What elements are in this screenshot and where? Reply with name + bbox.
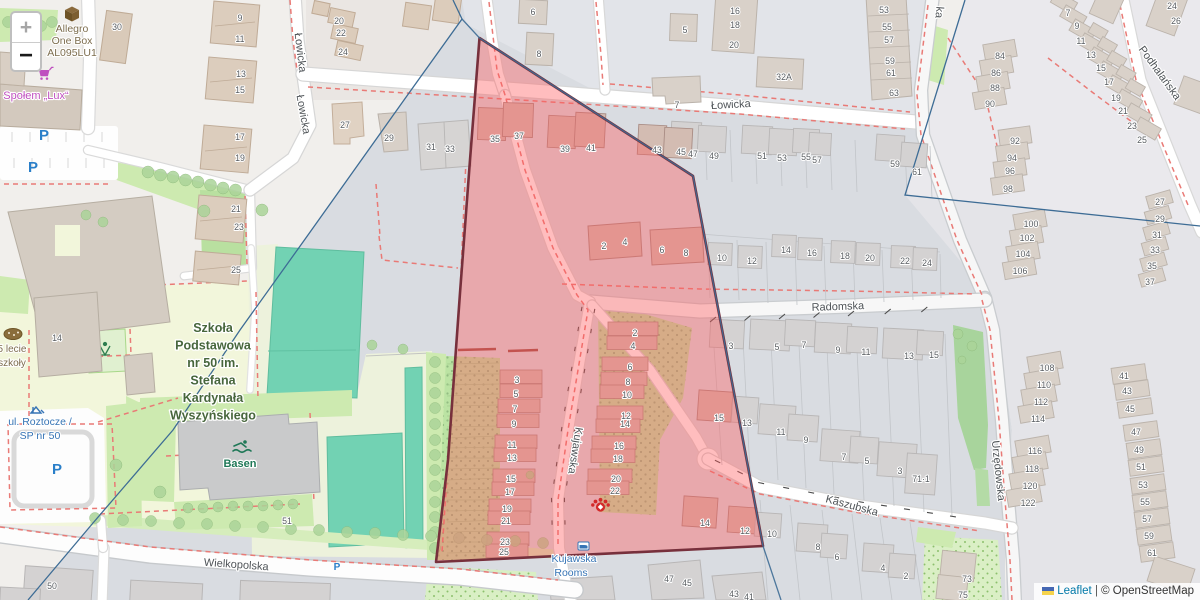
svg-text:104: 104	[1016, 249, 1031, 259]
svg-text:4: 4	[881, 563, 886, 573]
svg-text:50: 50	[47, 581, 57, 591]
svg-text:116: 116	[1028, 446, 1042, 456]
svg-text:12: 12	[740, 526, 750, 536]
svg-text:55: 55	[801, 152, 811, 162]
svg-text:13: 13	[236, 69, 246, 79]
svg-text:26: 26	[1171, 16, 1181, 26]
svg-text:32A: 32A	[776, 72, 792, 82]
svg-text:Kardynała: Kardynała	[183, 391, 244, 405]
svg-text:14: 14	[700, 518, 710, 528]
svg-text:szkoły: szkoły	[0, 358, 26, 369]
svg-text:20: 20	[611, 474, 621, 484]
svg-text:8: 8	[816, 542, 821, 552]
svg-text:51: 51	[1136, 462, 1146, 472]
svg-text:P: P	[39, 127, 49, 144]
svg-text:Stefana: Stefana	[190, 374, 236, 388]
svg-text:118: 118	[1025, 464, 1039, 474]
svg-text:106: 106	[1013, 266, 1028, 276]
svg-text:88: 88	[990, 83, 1000, 93]
svg-text:10: 10	[622, 390, 632, 400]
svg-text:20: 20	[334, 16, 344, 26]
svg-text:35: 35	[1147, 261, 1157, 271]
svg-text:122: 122	[1021, 498, 1036, 508]
svg-text:ka: ka	[932, 6, 945, 19]
svg-text:110: 110	[1037, 380, 1051, 390]
svg-text:5: 5	[514, 389, 519, 399]
svg-text:11: 11	[1076, 36, 1085, 46]
svg-text:ul. Roztocze /: ul. Roztocze /	[8, 416, 72, 428]
svg-text:23: 23	[234, 222, 244, 232]
svg-text:49: 49	[1134, 445, 1144, 455]
svg-text:18: 18	[840, 251, 850, 261]
svg-text:8: 8	[684, 248, 689, 258]
svg-text:57: 57	[812, 155, 822, 165]
svg-text:45: 45	[1125, 404, 1135, 414]
svg-text:6: 6	[660, 245, 665, 255]
svg-text:41: 41	[586, 143, 596, 153]
svg-text:nr 50 im.: nr 50 im.	[187, 356, 238, 370]
svg-text:P: P	[334, 562, 341, 573]
svg-text:3: 3	[898, 466, 903, 476]
svg-text:15: 15	[235, 85, 245, 95]
svg-text:96: 96	[1005, 166, 1015, 176]
svg-text:94: 94	[1007, 153, 1017, 163]
svg-text:11: 11	[235, 34, 244, 44]
svg-text:59: 59	[885, 56, 895, 66]
svg-text:41: 41	[744, 592, 754, 600]
svg-text:59: 59	[890, 159, 900, 169]
svg-text:71·1: 71·1	[912, 474, 930, 484]
svg-text:15: 15	[506, 474, 516, 484]
svg-text:13: 13	[904, 351, 914, 361]
svg-text:7: 7	[802, 340, 807, 350]
svg-text:14: 14	[781, 245, 791, 255]
svg-text:10: 10	[717, 253, 727, 263]
svg-text:7: 7	[675, 100, 680, 110]
svg-text:24: 24	[922, 258, 932, 268]
svg-text:9: 9	[804, 435, 809, 445]
svg-text:P: P	[52, 461, 62, 478]
svg-text:11: 11	[861, 347, 870, 357]
svg-text:37: 37	[1145, 277, 1155, 287]
svg-text:9: 9	[238, 13, 243, 23]
svg-text:49: 49	[709, 151, 719, 161]
svg-text:57: 57	[1142, 514, 1152, 524]
svg-text:51: 51	[757, 151, 767, 161]
svg-text:8: 8	[626, 377, 631, 387]
svg-text:17: 17	[505, 487, 515, 497]
svg-text:22: 22	[336, 28, 346, 38]
svg-text:55: 55	[882, 22, 892, 32]
svg-text:25: 25	[231, 265, 241, 275]
svg-text:11: 11	[776, 427, 785, 437]
svg-text:Szkoła: Szkoła	[193, 321, 234, 335]
svg-text:86: 86	[991, 68, 1001, 78]
svg-text:33: 33	[1150, 245, 1160, 255]
svg-text:47: 47	[1131, 427, 1141, 437]
svg-text:23: 23	[1127, 121, 1137, 131]
svg-text:30: 30	[112, 22, 122, 32]
svg-text:19: 19	[235, 153, 245, 163]
svg-text:61: 61	[912, 167, 922, 177]
svg-text:29: 29	[384, 133, 394, 143]
svg-text:21: 21	[1118, 106, 1128, 116]
svg-text:5: 5	[683, 25, 688, 35]
svg-text:108: 108	[1040, 363, 1055, 373]
svg-text:One Box: One Box	[52, 35, 94, 47]
svg-text:45: 45	[676, 147, 686, 157]
svg-text:13: 13	[507, 453, 517, 463]
svg-text:33: 33	[445, 144, 455, 154]
svg-text:19: 19	[502, 504, 512, 514]
svg-text:43: 43	[652, 145, 662, 155]
svg-text:27: 27	[340, 120, 350, 130]
svg-text:43: 43	[729, 589, 739, 599]
svg-text:3: 3	[729, 341, 734, 351]
svg-text:20: 20	[865, 253, 875, 263]
svg-text:10: 10	[767, 529, 777, 539]
svg-text:6: 6	[835, 552, 840, 562]
svg-text:59: 59	[1144, 531, 1154, 541]
svg-text:9: 9	[1075, 21, 1080, 31]
svg-text:43: 43	[1122, 386, 1132, 396]
svg-text:Radomska: Radomska	[811, 300, 865, 314]
svg-text:16: 16	[807, 248, 817, 258]
svg-text:P: P	[28, 159, 38, 176]
svg-text:57: 57	[884, 35, 894, 45]
svg-text:11: 11	[507, 440, 516, 450]
svg-text:21: 21	[231, 204, 241, 214]
svg-text:22: 22	[610, 486, 620, 496]
svg-text:75: 75	[958, 590, 968, 600]
svg-text:61: 61	[886, 68, 896, 78]
svg-text:18: 18	[613, 454, 623, 464]
svg-text:98: 98	[1003, 184, 1013, 194]
svg-text:24: 24	[1167, 1, 1177, 11]
svg-text:19: 19	[1111, 93, 1121, 103]
svg-text:5: 5	[865, 456, 870, 466]
svg-text:4: 4	[631, 341, 636, 351]
svg-text:39: 39	[560, 144, 570, 154]
svg-text:2: 2	[602, 241, 607, 251]
svg-text:15: 15	[1096, 63, 1106, 73]
svg-text:Basen: Basen	[223, 458, 256, 470]
svg-text:7: 7	[842, 452, 847, 462]
svg-text:35: 35	[490, 134, 500, 144]
svg-text:114: 114	[1031, 414, 1045, 424]
svg-text:15: 15	[929, 350, 939, 360]
svg-text:6: 6	[628, 362, 633, 372]
svg-text:16: 16	[730, 6, 740, 16]
svg-text:53: 53	[777, 153, 787, 163]
svg-text:25: 25	[1137, 135, 1147, 145]
svg-text:SP nr 50: SP nr 50	[20, 430, 61, 442]
svg-text:8: 8	[537, 49, 542, 59]
svg-text:12: 12	[747, 256, 757, 266]
svg-text:3: 3	[515, 375, 520, 385]
svg-text:17: 17	[1104, 77, 1114, 87]
svg-text:102: 102	[1020, 233, 1035, 243]
svg-text:90: 90	[985, 99, 995, 109]
svg-text:22: 22	[900, 256, 910, 266]
svg-text:100: 100	[1024, 219, 1039, 229]
svg-text:14: 14	[52, 333, 62, 343]
svg-text:Społem „Lux“: Społem „Lux“	[3, 90, 69, 102]
svg-text:31: 31	[426, 142, 436, 152]
svg-text:17: 17	[235, 132, 245, 142]
svg-text:92: 92	[1010, 136, 1020, 146]
svg-text:21: 21	[501, 516, 511, 526]
svg-text:41: 41	[1119, 371, 1129, 381]
svg-text:7: 7	[1066, 8, 1071, 18]
svg-text:15: 15	[714, 413, 724, 423]
svg-text:13: 13	[742, 418, 752, 428]
svg-text:14: 14	[620, 419, 630, 429]
svg-text:2: 2	[633, 328, 638, 338]
svg-text:112: 112	[1034, 397, 1048, 407]
svg-text:120: 120	[1023, 481, 1038, 491]
svg-text:Podstawowa: Podstawowa	[175, 339, 252, 353]
svg-text:Wyszyńskiego: Wyszyńskiego	[170, 409, 256, 423]
svg-text:16: 16	[614, 441, 624, 451]
svg-text:5: 5	[775, 342, 780, 352]
svg-text:18: 18	[730, 20, 740, 30]
svg-text:47: 47	[664, 574, 674, 584]
svg-text:23: 23	[500, 537, 510, 547]
svg-text:25: 25	[499, 547, 509, 557]
svg-text:61: 61	[1147, 548, 1157, 558]
svg-text:20: 20	[729, 40, 739, 50]
svg-text:Allegro: Allegro	[56, 23, 89, 35]
svg-text:31: 31	[1152, 230, 1162, 240]
svg-text:53: 53	[879, 5, 889, 15]
svg-text:Kujawska: Kujawska	[552, 553, 597, 565]
svg-text:9: 9	[836, 345, 841, 355]
svg-text:13: 13	[1086, 50, 1096, 60]
svg-text:37: 37	[514, 131, 524, 141]
svg-text:73: 73	[962, 574, 972, 584]
svg-text:2: 2	[904, 571, 909, 581]
svg-text:84: 84	[995, 51, 1005, 61]
svg-text:27: 27	[1155, 197, 1165, 207]
svg-text:63: 63	[889, 88, 899, 98]
svg-text:6: 6	[531, 7, 536, 17]
svg-text:45: 45	[682, 578, 692, 588]
svg-text:24: 24	[338, 47, 348, 57]
svg-text:Łowicka: Łowicka	[711, 98, 752, 112]
svg-text:AL095LU1: AL095LU1	[47, 47, 97, 59]
svg-text:51: 51	[282, 516, 292, 526]
svg-text:9: 9	[512, 419, 517, 429]
svg-text:47: 47	[688, 149, 698, 159]
svg-text:5 lecie: 5 lecie	[0, 344, 27, 355]
svg-text:55: 55	[1140, 497, 1150, 507]
svg-text:7: 7	[513, 404, 518, 414]
svg-text:Rooms: Rooms	[554, 567, 587, 579]
svg-text:29: 29	[1155, 214, 1165, 224]
svg-text:53: 53	[1138, 480, 1148, 490]
svg-text:4: 4	[623, 237, 628, 247]
